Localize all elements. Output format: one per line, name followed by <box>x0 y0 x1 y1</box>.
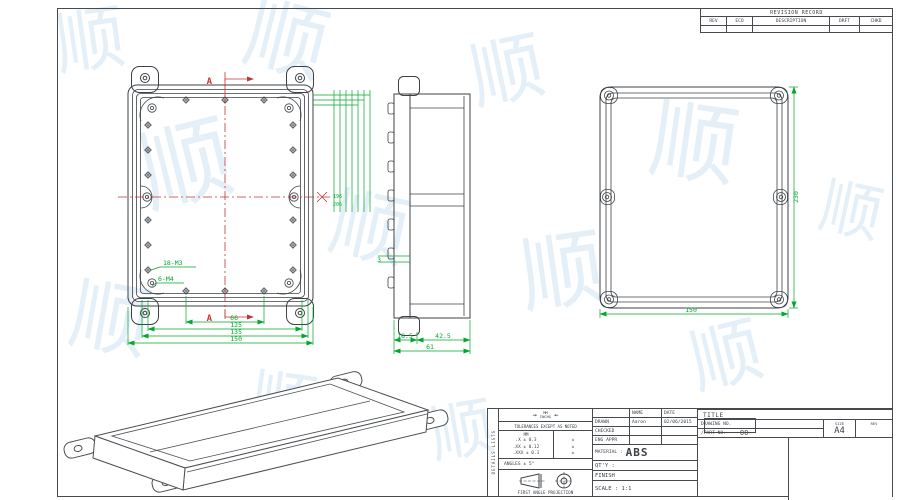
signoff-name-drawn: Aaron <box>630 418 662 426</box>
section-label-top: A <box>207 77 213 87</box>
signoff-header-date: DATE <box>662 409 697 417</box>
revision-cell-empty <box>701 26 727 32</box>
units-inch-label: INCHS <box>540 415 551 419</box>
signoff-date-engappr <box>662 436 697 444</box>
revision-col-chkd: CHKD <box>860 17 892 25</box>
dim-label: 18.5 <box>397 332 413 340</box>
revision-cell-empty <box>830 26 860 32</box>
back-view <box>600 87 788 308</box>
revision-cell-empty <box>860 26 892 32</box>
drawing-sheet: 顺 顺 顺 顺 顺 顺 顺 顺 顺 顺 顺 顺 <box>0 0 900 500</box>
thread-note-m4: 6-M4 <box>158 275 174 283</box>
dim-label: 206 <box>333 202 342 208</box>
tolerance-row: .XXX ± 0.1 <box>513 451 539 458</box>
dim-label: 196 <box>333 194 342 200</box>
tolerance-inch-cell: ± <box>572 445 575 452</box>
revision-cell-empty <box>727 26 753 32</box>
angles-tolerance: ANGLES ± 5° <box>499 459 592 470</box>
size-value: A4 <box>834 426 845 436</box>
tolerance-inch-cell: ± <box>572 438 575 445</box>
material-label: MATERIAL : <box>595 450 623 455</box>
material-value: ABS <box>626 446 649 459</box>
signoff-block: NAME DATE DRAWN Aaron 02/06/2015 CHECKED… <box>593 409 698 496</box>
dim-arrow-right-icon: ← <box>554 411 558 419</box>
signoff-name-checked <box>630 427 662 435</box>
revision-col-description: DESCRIPTION <box>753 17 830 25</box>
signoff-date-drawn: 02/06/2015 <box>662 418 697 426</box>
signoff-name-engappr <box>630 436 662 444</box>
revision-col-eco: ECO <box>727 17 753 25</box>
front-dimensions <box>128 90 370 345</box>
side-dimensions <box>378 256 470 354</box>
dim-label: 3 <box>377 256 381 264</box>
dim-label: 42.5 <box>435 332 451 340</box>
scale-label: SCALE : 1:1 <box>593 481 697 496</box>
revision-record-table: REVISION RECORD REV ECO DESCRIPTION DRFT… <box>700 8 893 33</box>
company-logo-box <box>704 418 756 433</box>
title-block: DETAILS LISTS → MM INCHS ← TOLERANCES EX… <box>487 408 893 497</box>
tolerance-row: .X ± 0.3 <box>515 438 536 445</box>
revision-col-drft: DRFT <box>830 17 860 25</box>
dim-arrow-left-icon: → <box>533 411 537 419</box>
signoff-header-blank <box>593 409 630 417</box>
signoff-role-checked: CHECKED <box>593 427 630 435</box>
tolerance-inch-cell: ± <box>572 451 575 458</box>
iso-view <box>63 370 450 494</box>
do-not-scale-note: DO NOT SCALE DRAWING <box>698 438 789 500</box>
dim-label: 61 <box>426 343 434 351</box>
signoff-role-drawn: DRAWN <box>593 418 630 426</box>
thread-note-m3: 18-M3 <box>163 259 183 267</box>
dim-label: 150 <box>685 306 697 314</box>
details-lists-label: DETAILS LISTS <box>491 430 496 474</box>
tolerance-block: → MM INCHS ← TOLERANCES EXCEPT AS NOTED … <box>499 409 593 496</box>
projection-label: FIRST ANGLE PROJECTION <box>518 490 573 495</box>
dim-label: 150 <box>230 335 242 343</box>
revision-cell-empty <box>753 26 830 32</box>
signoff-header-name: NAME <box>630 409 662 417</box>
signoff-role-engappr: ENG APPR <box>593 436 630 444</box>
finish-label: FINISH <box>593 471 697 481</box>
front-view <box>128 67 314 325</box>
revision-col-rev: REV <box>701 17 727 25</box>
back-dimensions <box>600 87 798 318</box>
signoff-date-checked <box>662 427 697 435</box>
projection-cone-icon <box>519 473 545 489</box>
title-area: TITLE DRAWING NO. /PART NO. 00 SIZE A4 R… <box>698 409 892 496</box>
details-lists-stub: DETAILS LISTS <box>488 409 499 496</box>
tolerance-heading: TOLERANCES EXCEPT AS NOTED <box>499 422 592 431</box>
qty-label: QT'Y : <box>593 461 697 471</box>
projection-target-icon <box>555 472 573 490</box>
rev-label: REV <box>856 420 892 437</box>
section-label-bottom: A <box>207 314 213 324</box>
side-view <box>388 77 470 336</box>
dim-label: 230 <box>792 191 800 203</box>
revision-record-title: REVISION RECORD <box>701 9 892 17</box>
